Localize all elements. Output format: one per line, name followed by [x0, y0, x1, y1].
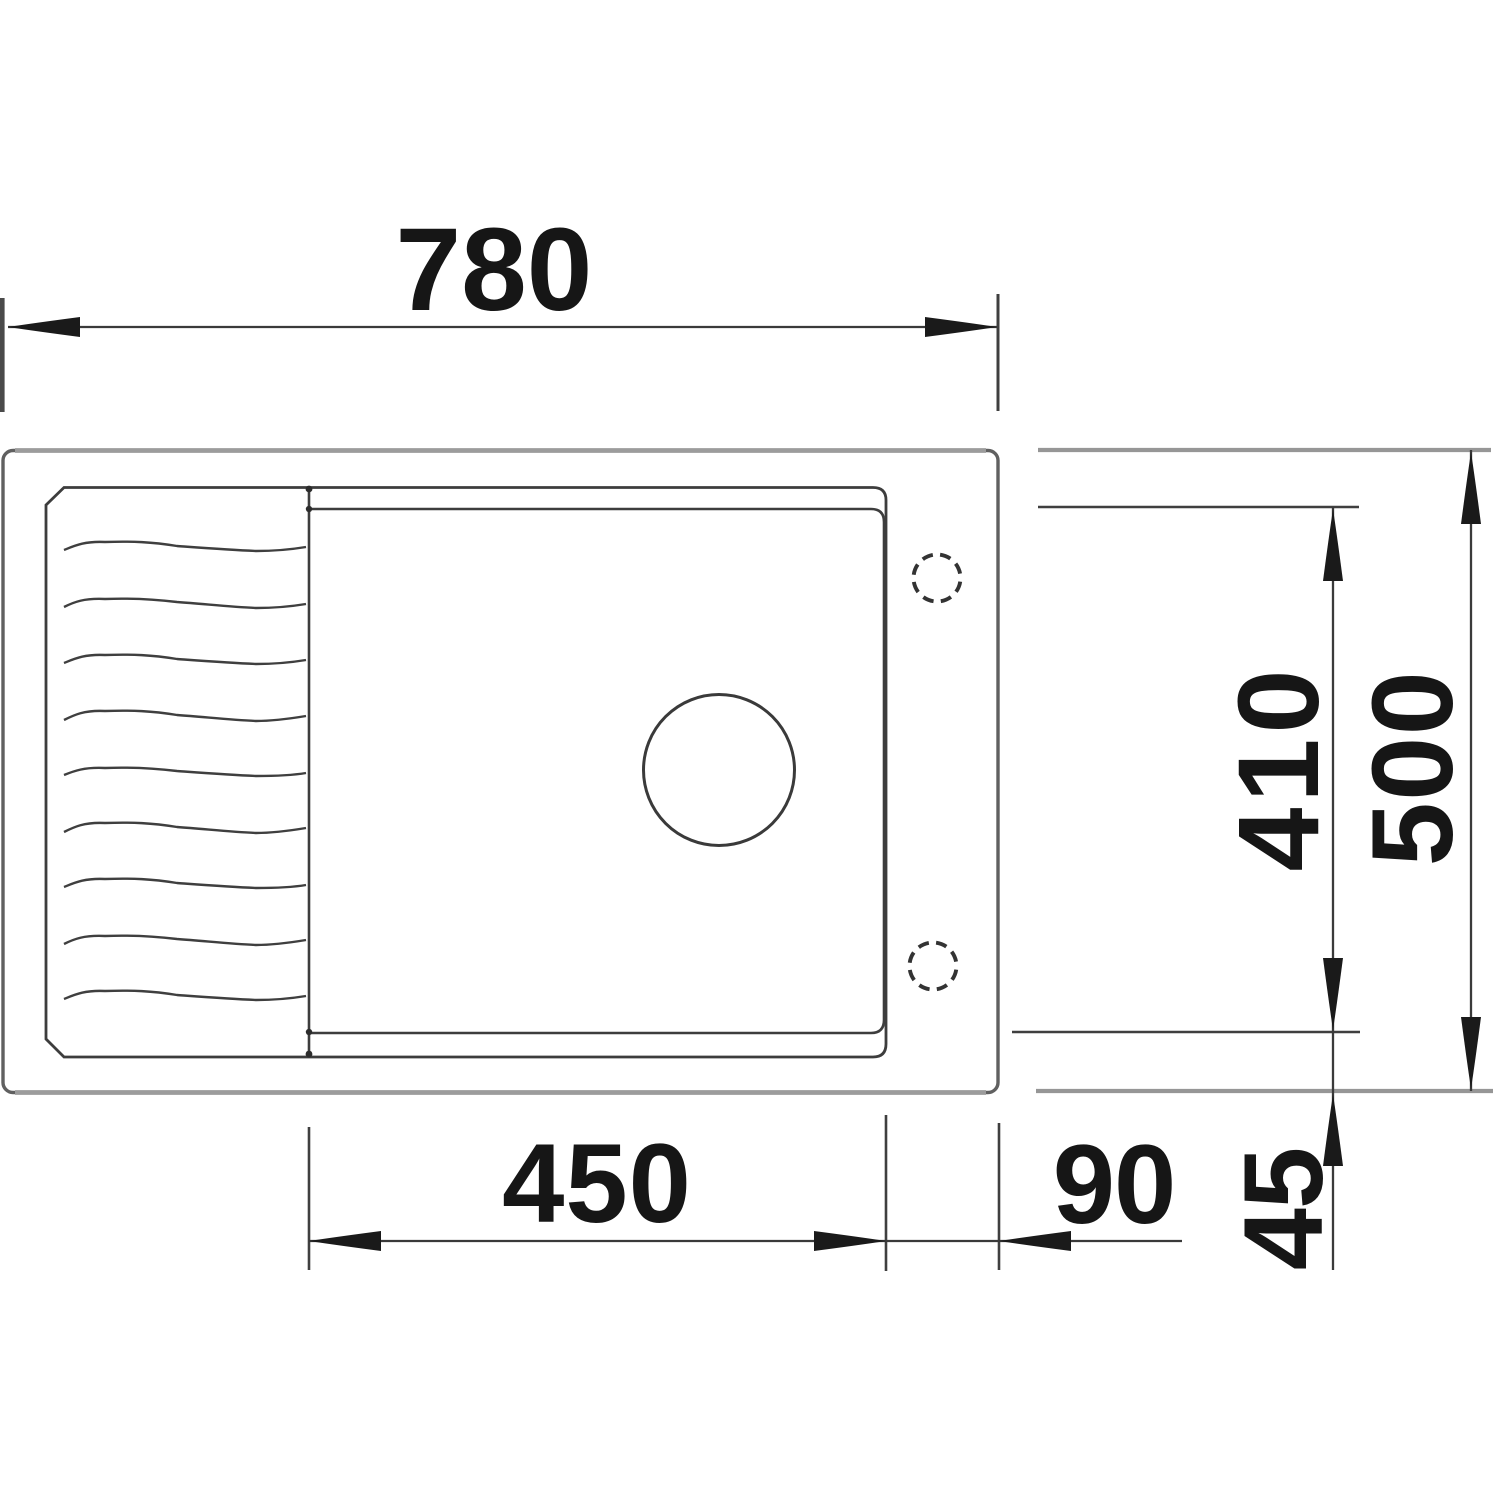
svg-text:410: 410 — [1215, 665, 1343, 872]
svg-text:780: 780 — [396, 204, 593, 336]
svg-text:90: 90 — [1053, 1122, 1176, 1247]
svg-text:45: 45 — [1221, 1148, 1346, 1271]
svg-text:450: 450 — [502, 1121, 692, 1246]
svg-text:500: 500 — [1349, 670, 1477, 866]
